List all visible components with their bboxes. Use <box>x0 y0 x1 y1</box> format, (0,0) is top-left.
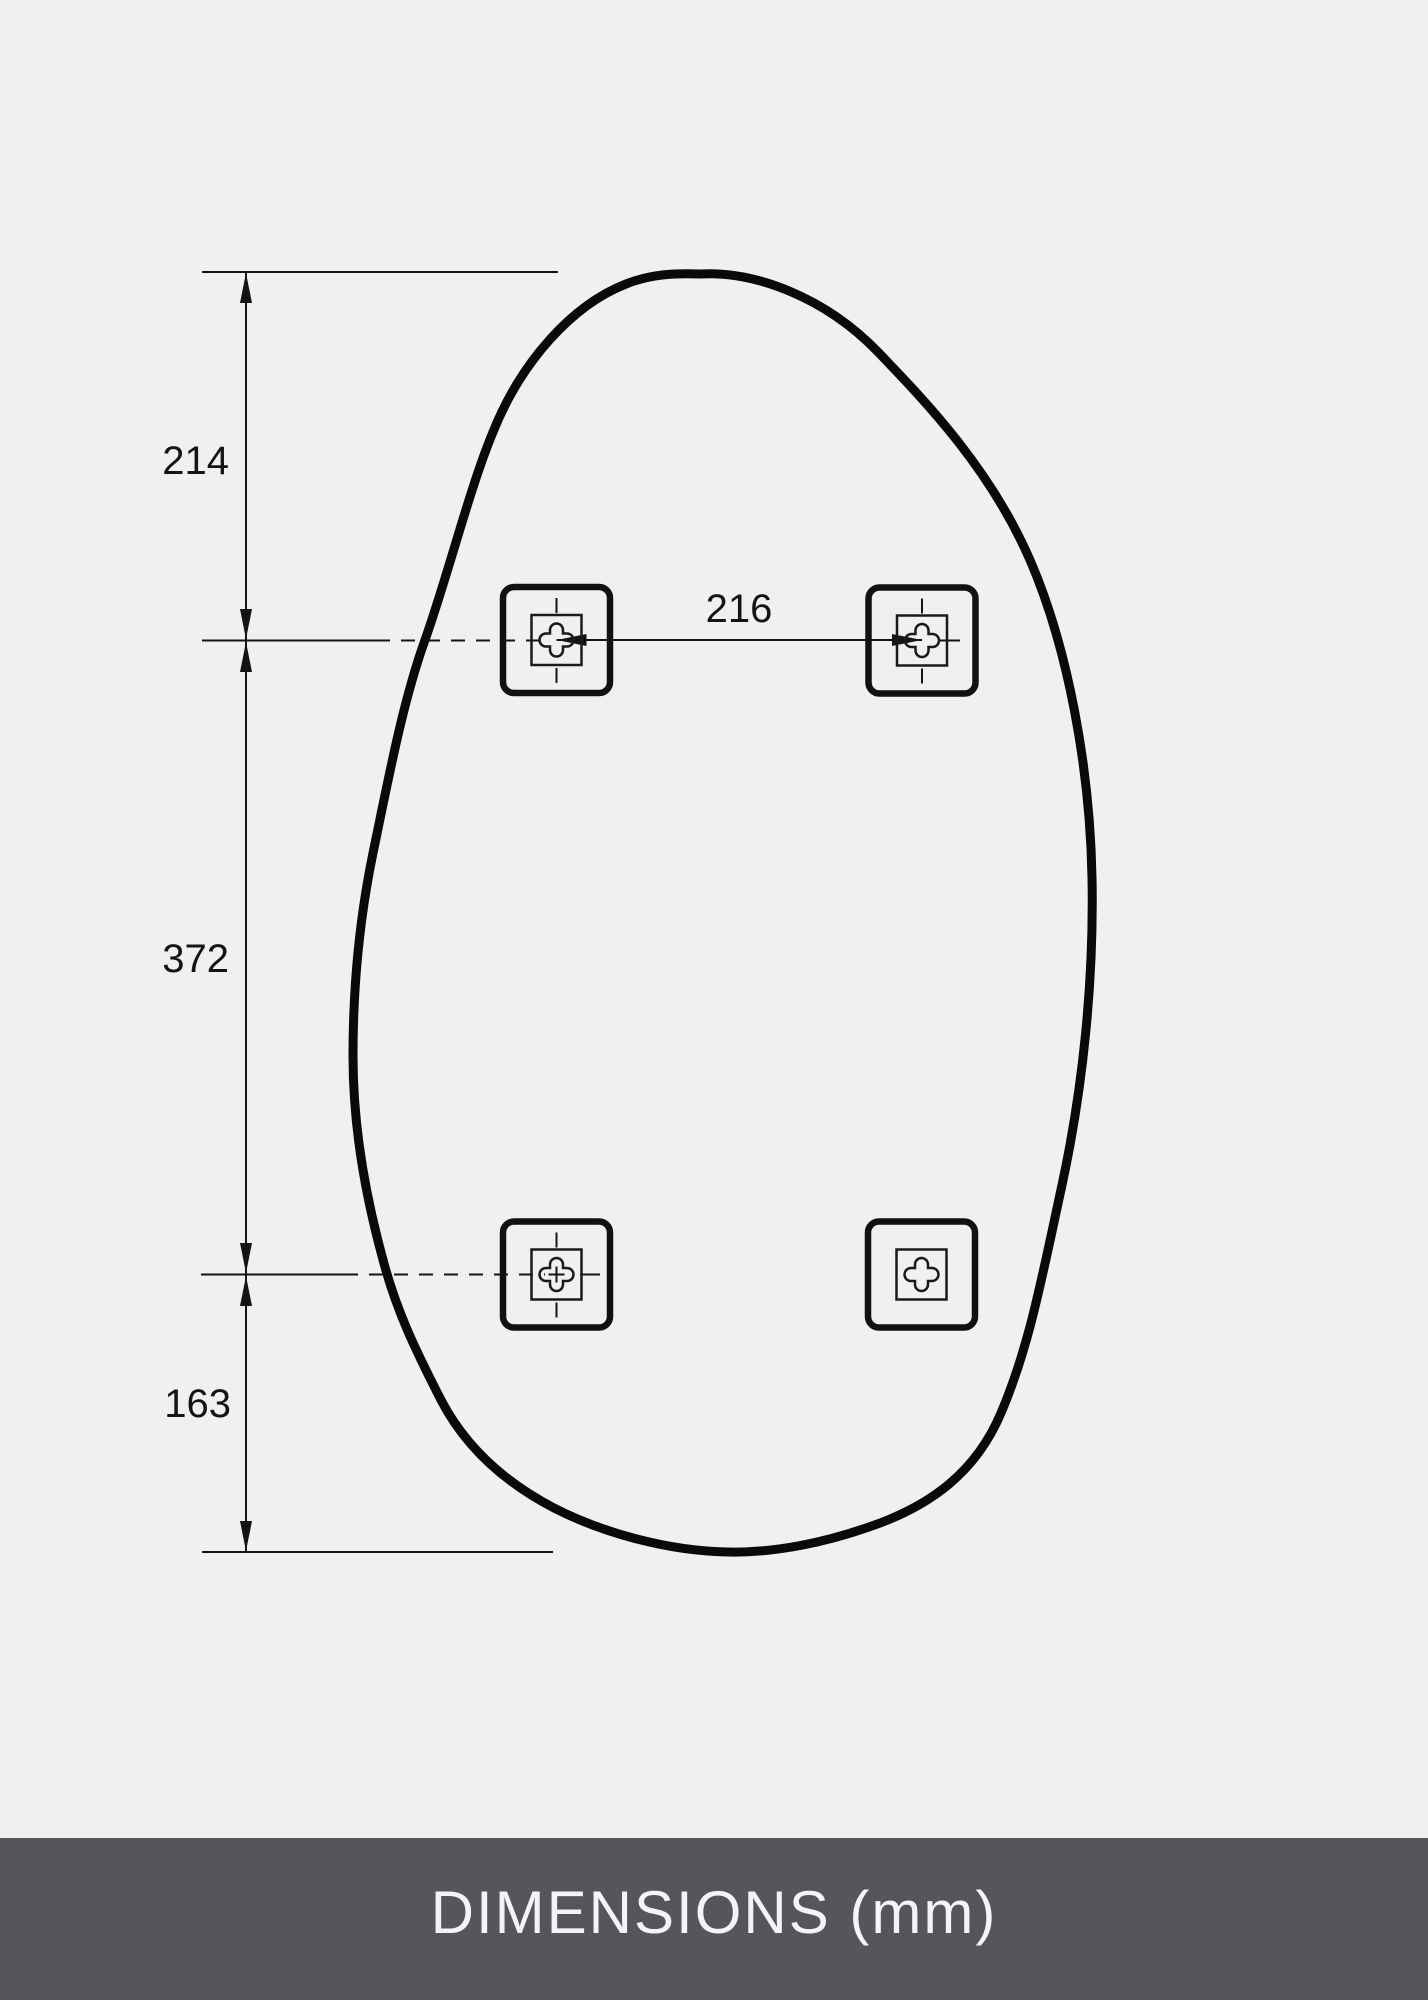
footer-bar: DIMENSIONS (mm) <box>0 1838 1428 2000</box>
cross-slot-icon <box>905 1258 939 1291</box>
dim-label-214: 214 <box>162 439 229 483</box>
arrow-up-icon <box>240 273 252 303</box>
page: 214 372 163 216 <box>0 0 1428 2000</box>
dim-label-163: 163 <box>164 1382 231 1426</box>
arrow-up-icon <box>240 642 252 672</box>
mounting-bracket-bottom-right <box>868 1222 975 1328</box>
arrow-down-icon <box>240 1243 252 1273</box>
dimension-diagram: 214 372 163 216 <box>0 0 1428 1838</box>
bracket-outer-square <box>868 1222 975 1328</box>
dim-label-216: 216 <box>706 587 773 631</box>
mirror-outline <box>353 274 1092 1552</box>
arrow-down-icon <box>240 1521 252 1551</box>
vertical-dimension-chain: 214 372 163 <box>162 273 252 1551</box>
diagram-canvas: 214 372 163 216 <box>0 0 1428 1838</box>
dim-label-372: 372 <box>162 937 229 981</box>
arrow-down-icon <box>240 609 252 639</box>
footer-title: DIMENSIONS (mm) <box>431 1878 998 1947</box>
reference-lines <box>201 272 960 1552</box>
arrow-up-icon <box>240 1276 252 1306</box>
